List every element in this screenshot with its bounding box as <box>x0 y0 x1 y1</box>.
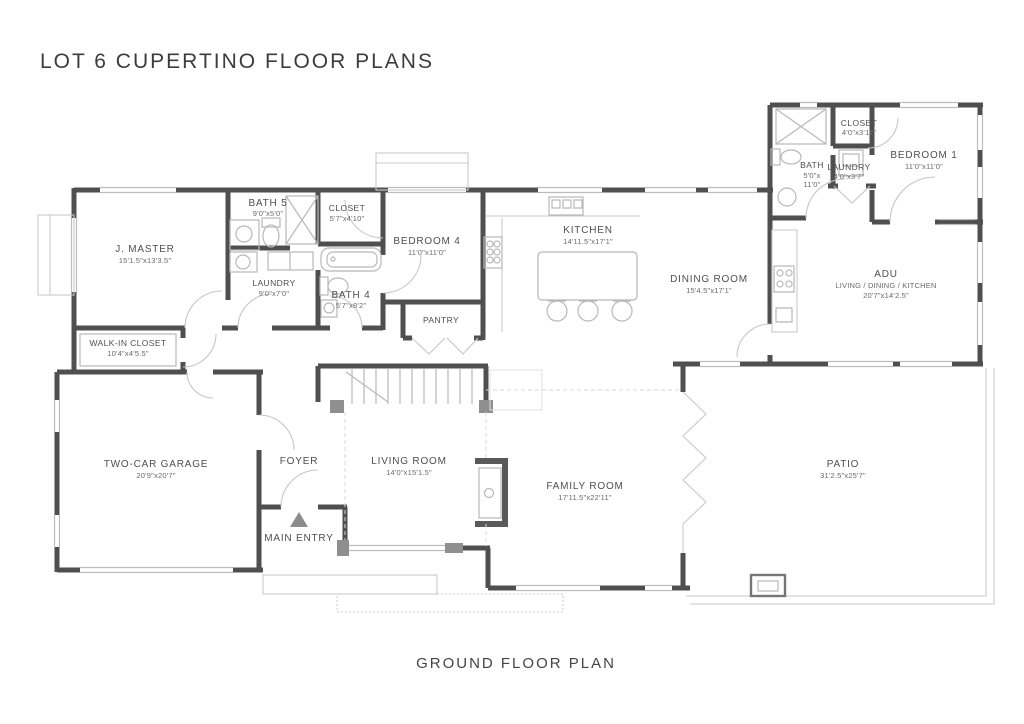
dims-dining: 15'4.5"x17'1" <box>686 286 732 295</box>
label-living: LIVING ROOM <box>371 456 446 467</box>
dims-adu-closet: 4'0"x3'11" <box>842 128 876 137</box>
dims-kitchen: 14'11.5"x17'1" <box>563 237 613 246</box>
dims-patio: 31'2.5"x25'7" <box>820 471 866 480</box>
dims1-adu-bath: 5'0"x <box>803 171 820 180</box>
dims-j-master: 15'1.5"x13'3.5" <box>119 256 172 265</box>
label-adu-bath: BATH <box>800 160 824 170</box>
plan-title: LOT 6 CUPERTINO FLOOR PLANS <box>40 50 434 73</box>
plan-caption: GROUND FLOOR PLAN <box>416 655 616 672</box>
dims-bedroom4: 11'0"x11'0" <box>408 248 446 257</box>
dims-living: 14'0"x15'1.5" <box>386 468 432 477</box>
label-adu: ADU <box>874 269 898 280</box>
label-laundry-main: LAUNDRY <box>252 278 295 288</box>
label-foyer: FOYER <box>280 456 318 467</box>
label-patio: PATIO <box>827 459 860 470</box>
dims-family: 17'11.5"x22'11" <box>558 493 612 502</box>
label-pantry: PANTRY <box>423 315 459 325</box>
floor-plan-canvas: LOT 6 CUPERTINO FLOOR PLANS GROUND FLOOR… <box>0 0 1024 724</box>
label-walk-in: WALK-IN CLOSET <box>89 338 166 348</box>
sub-adu: LIVING / DINING / KITCHEN <box>835 281 936 290</box>
label-kitchen: KITCHEN <box>563 225 613 236</box>
dims-closet-main: 5'7"x4'10" <box>330 214 365 223</box>
dims-bath4: 5'7"x8'2" <box>336 301 367 310</box>
dims2-adu-bath: 11'0" <box>803 180 820 189</box>
label-adu-closet: CLOSET <box>841 118 877 128</box>
dims-adu: 20'7"x14'2.5" <box>863 291 909 300</box>
label-closet-main: CLOSET <box>329 203 365 213</box>
dims-adu-laundry: 4'0"x3'7" <box>834 172 865 181</box>
label-main-entry: MAIN ENTRY <box>264 533 334 544</box>
label-j-master: J. MASTER <box>115 244 174 255</box>
living-family-pier <box>445 543 463 553</box>
label-dining: DINING ROOM <box>670 274 748 285</box>
dims-walk-in: 10'4"x4'5.5" <box>107 349 149 358</box>
label-bath5: BATH 5 <box>248 198 287 209</box>
label-garage: TWO-CAR GARAGE <box>104 459 209 470</box>
living-room-pier <box>337 540 349 556</box>
label-family: FAMILY ROOM <box>546 481 623 492</box>
floor-plan-page: LOT 6 CUPERTINO FLOOR PLANS GROUND FLOOR… <box>0 0 1024 724</box>
dims-bath5: 9'0"x5'0" <box>253 209 284 218</box>
label-adu-laundry: LAUNDRY <box>827 162 870 172</box>
dims-bedroom1: 11'0"x11'0" <box>905 162 943 171</box>
label-bath4: BATH 4 <box>331 290 370 301</box>
dims-laundry-main: 9'0"x7'0" <box>259 289 290 298</box>
label-bedroom4: BEDROOM 4 <box>393 236 460 247</box>
label-bedroom1: BEDROOM 1 <box>890 150 957 161</box>
dims-garage: 20'9"x20'7" <box>136 471 175 480</box>
